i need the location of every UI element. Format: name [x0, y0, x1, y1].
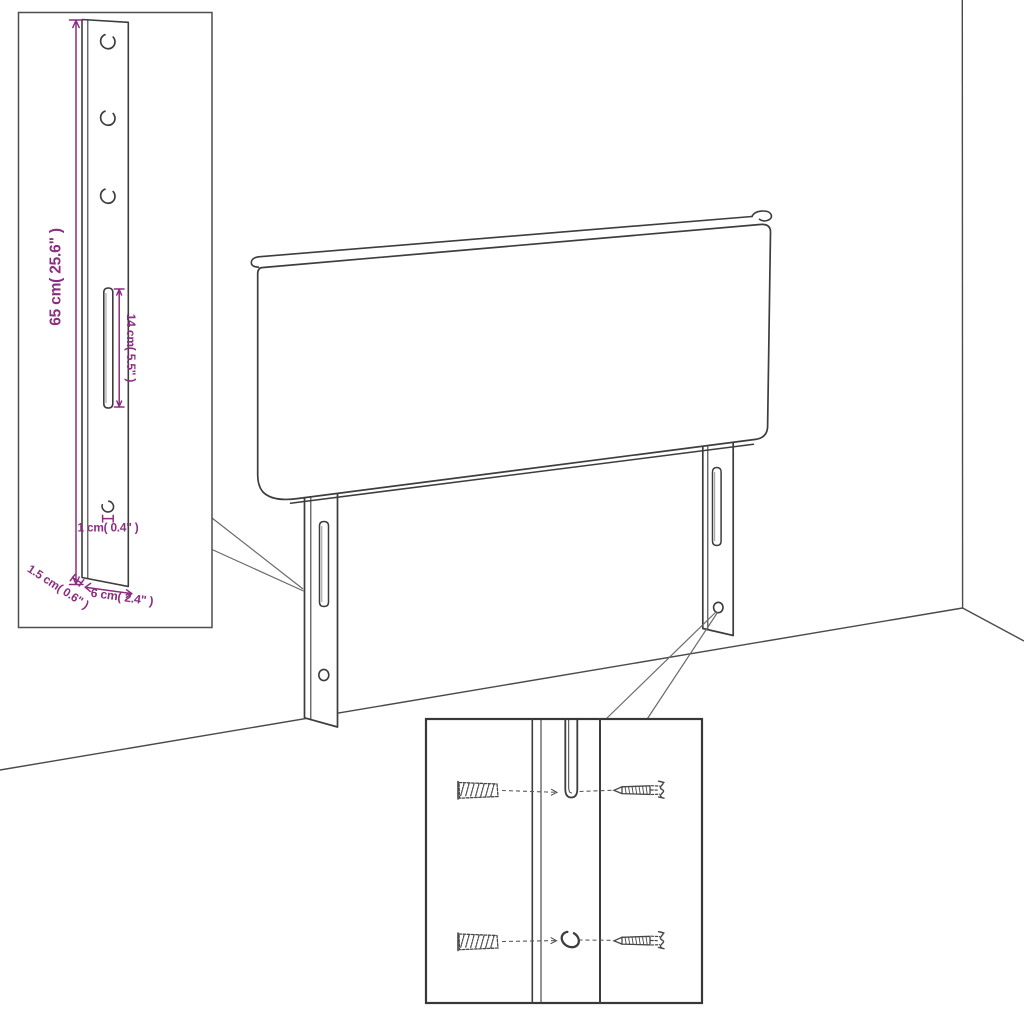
dimension-hole-label: 1 cm( 0.4" ): [78, 521, 139, 535]
headboard-leg-right: [703, 442, 733, 636]
floor-line-right: [963, 608, 1024, 641]
mounting-callout-line-2: [648, 613, 718, 719]
bracket-callout-line-2: [212, 550, 304, 592]
headboard-panel: [251, 211, 771, 503]
mounting-inset-frame: [426, 719, 702, 1003]
dimension-height-label: 65 cm( 25.6" ): [48, 228, 65, 326]
bracket-body: [82, 20, 128, 587]
bracket-callout-line-1: [212, 518, 303, 589]
bracket-detail-inset: 65 cm( 25.6" ) 14 cm( 5.5" ) 1 cm( 0.4" …: [19, 13, 213, 628]
bracket-drawing: [82, 20, 128, 587]
bracket-callout-lines: [212, 518, 304, 591]
panel-top-left-curl: [251, 257, 258, 267]
panel-face: [258, 224, 771, 499]
panel-top-right-curl: [752, 211, 771, 221]
product-diagram-image: 65 cm( 25.6" ) 14 cm( 5.5" ) 1 cm( 0.4" …: [0, 0, 1024, 1024]
headboard-leg-left: [305, 486, 338, 727]
assembly-diagram: 65 cm( 25.6" ) 14 cm( 5.5" ) 1 cm( 0.4" …: [0, 0, 1024, 1024]
dimension-slot-label: 14 cm( 5.5" ): [124, 314, 138, 383]
mounting-detail-inset: [426, 719, 702, 1003]
